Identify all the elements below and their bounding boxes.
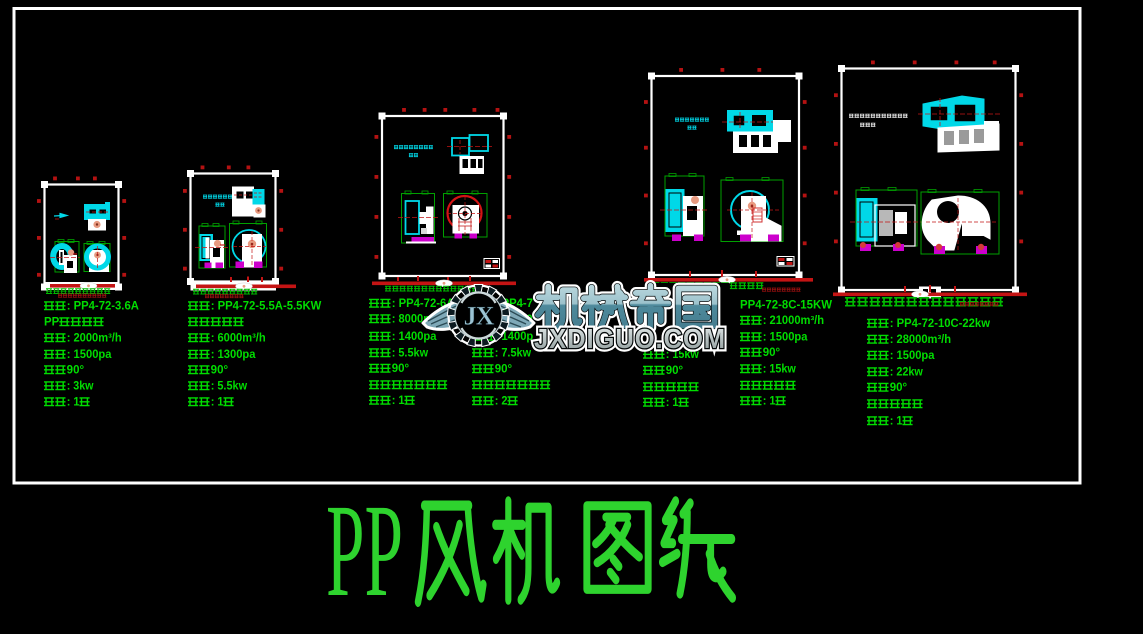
svg-text:: 1: : 1 xyxy=(392,395,405,407)
svg-text:: 2000m³/h: : 2000m³/h xyxy=(67,333,122,345)
svg-text:90°: 90° xyxy=(666,365,684,377)
svg-text:: 6000m³/h: : 6000m³/h xyxy=(211,333,266,345)
svg-text:: 1: : 1 xyxy=(67,397,80,409)
svg-text:: 1500pa: : 1500pa xyxy=(67,349,112,361)
svg-text:: 1: : 1 xyxy=(763,396,776,408)
svg-text:JX: JX xyxy=(464,302,495,331)
svg-text:: 1: : 1 xyxy=(666,397,679,409)
svg-text:: 1: : 1 xyxy=(890,416,903,428)
svg-text:: 7.5kw: : 7.5kw xyxy=(495,348,531,360)
svg-text:90°: 90° xyxy=(495,364,513,376)
svg-text:: PP4-72-5.5A-5.5KW: : PP4-72-5.5A-5.5KW xyxy=(211,301,322,313)
svg-text:90°: 90° xyxy=(392,363,410,375)
svg-text:: 1400pa: : 1400pa xyxy=(392,331,437,343)
svg-text:: 5.5kw: : 5.5kw xyxy=(211,381,247,393)
svg-text:: 5.5kw: : 5.5kw xyxy=(392,348,428,360)
svg-text:: 2: : 2 xyxy=(495,396,508,408)
svg-text:PP: PP xyxy=(44,317,60,329)
svg-text:90°: 90° xyxy=(890,382,908,394)
svg-text:90°: 90° xyxy=(211,365,229,377)
svg-text:: 3kw: : 3kw xyxy=(67,381,94,393)
svg-text:: 1300pa: : 1300pa xyxy=(211,349,256,361)
svg-text:JXDIGUO.COM: JXDIGUO.COM xyxy=(534,323,726,354)
svg-text:: PP4-72-3.6A: : PP4-72-3.6A xyxy=(67,301,139,313)
svg-text:PP4-72-8C-15KW: PP4-72-8C-15KW xyxy=(740,300,832,312)
svg-text:90°: 90° xyxy=(763,347,781,359)
svg-text:: 15kw: : 15kw xyxy=(763,364,796,376)
svg-text:: 22kw: : 22kw xyxy=(890,367,923,379)
svg-text:: 1500pa: : 1500pa xyxy=(763,332,808,344)
svg-text:: 1: : 1 xyxy=(211,397,224,409)
svg-text:: PP4-72-10C-22kw: : PP4-72-10C-22kw xyxy=(890,318,990,330)
svg-text:90°: 90° xyxy=(67,365,85,377)
svg-text:: 1500pa: : 1500pa xyxy=(890,350,935,362)
svg-text:: 21000m³/h: : 21000m³/h xyxy=(763,315,824,327)
svg-text:: 28000m³/h: : 28000m³/h xyxy=(890,334,951,346)
svg-text:PP: PP xyxy=(326,476,403,624)
